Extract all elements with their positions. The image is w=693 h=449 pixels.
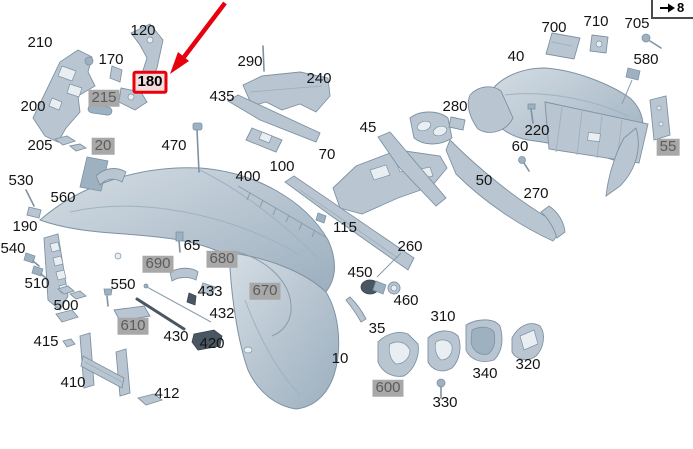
part-label-412[interactable]: 412 xyxy=(154,386,179,403)
part-415-drawing xyxy=(63,339,75,347)
part-280-drawing xyxy=(449,117,465,130)
part-35-drawing xyxy=(346,297,366,322)
part-label-310[interactable]: 310 xyxy=(430,309,455,326)
part-label-60[interactable]: 60 xyxy=(512,139,529,156)
part-label-290[interactable]: 290 xyxy=(237,54,262,71)
part-label-270[interactable]: 270 xyxy=(523,186,548,203)
part-label-320[interactable]: 320 xyxy=(515,357,540,374)
arrow-right-icon xyxy=(660,3,675,13)
part-label-550[interactable]: 550 xyxy=(110,277,135,294)
part-label-200[interactable]: 200 xyxy=(20,99,45,116)
part-label-20[interactable]: 20 xyxy=(92,138,115,155)
part-540-drawing xyxy=(24,253,39,266)
part-label-400[interactable]: 400 xyxy=(235,169,260,186)
part-600-drawing xyxy=(378,332,418,376)
part-label-500[interactable]: 500 xyxy=(53,298,78,315)
part-label-560[interactable]: 560 xyxy=(50,190,75,207)
part-200-drawing xyxy=(33,50,95,142)
part-label-120[interactable]: 120 xyxy=(130,23,155,40)
part-label-180[interactable]: 180 xyxy=(132,71,167,94)
part-label-705[interactable]: 705 xyxy=(624,16,649,33)
nav-page-link[interactable]: 8 xyxy=(651,0,693,19)
part-690-drawing xyxy=(170,268,198,281)
nav-page-number: 8 xyxy=(677,0,684,15)
part-label-435[interactable]: 435 xyxy=(209,89,234,106)
part-60-drawing xyxy=(519,157,530,172)
part-label-600[interactable]: 600 xyxy=(372,380,403,397)
part-700-drawing xyxy=(546,33,580,59)
parts-diagram: 2101201701802002152052047043529024045280… xyxy=(0,0,693,449)
part-label-215[interactable]: 215 xyxy=(88,90,119,107)
part-label-210[interactable]: 210 xyxy=(27,35,52,52)
part-label-680[interactable]: 680 xyxy=(206,251,237,268)
part-label-420[interactable]: 420 xyxy=(199,336,224,353)
part-55-panel-drawing xyxy=(650,96,670,140)
part-label-340[interactable]: 340 xyxy=(472,366,497,383)
part-label-40[interactable]: 40 xyxy=(508,49,525,66)
part-label-35[interactable]: 35 xyxy=(369,321,386,338)
part-705-drawing xyxy=(642,34,661,48)
part-label-70[interactable]: 70 xyxy=(319,147,336,164)
part-label-330[interactable]: 330 xyxy=(432,395,457,412)
part-label-10[interactable]: 10 xyxy=(332,351,349,368)
part-label-240[interactable]: 240 xyxy=(306,71,331,88)
part-label-540[interactable]: 540 xyxy=(0,241,25,258)
part-433-drawing xyxy=(187,293,196,305)
part-label-432[interactable]: 432 xyxy=(209,306,234,323)
part-label-580[interactable]: 580 xyxy=(633,52,658,69)
part-label-460[interactable]: 460 xyxy=(393,293,418,310)
part-label-170[interactable]: 170 xyxy=(98,52,123,69)
part-label-55[interactable]: 55 xyxy=(657,139,680,156)
part-label-433[interactable]: 433 xyxy=(197,284,222,301)
part-label-415[interactable]: 415 xyxy=(33,334,58,351)
part-170-drawing xyxy=(110,66,122,82)
part-label-410[interactable]: 410 xyxy=(60,375,85,392)
part-label-510[interactable]: 510 xyxy=(24,276,49,293)
part-310-drawing xyxy=(428,331,460,371)
part-label-100[interactable]: 100 xyxy=(269,159,294,176)
part-450-drawing xyxy=(361,280,386,294)
part-340-drawing xyxy=(466,320,502,362)
part-label-430[interactable]: 430 xyxy=(163,329,188,346)
part-label-205[interactable]: 205 xyxy=(27,138,52,155)
part-470-drawing xyxy=(193,123,202,172)
part-710-drawing xyxy=(590,35,608,53)
part-320-drawing xyxy=(512,324,543,360)
part-205-drawing xyxy=(55,136,86,151)
part-label-470[interactable]: 470 xyxy=(161,138,186,155)
part-label-530[interactable]: 530 xyxy=(8,173,33,190)
part-65-drawing xyxy=(176,232,183,252)
part-label-450[interactable]: 450 xyxy=(347,265,372,282)
part-label-610[interactable]: 610 xyxy=(117,318,148,335)
part-410-drawing xyxy=(80,333,130,396)
part-label-65[interactable]: 65 xyxy=(184,238,201,255)
part-label-115[interactable]: 115 xyxy=(333,220,357,237)
part-label-260[interactable]: 260 xyxy=(397,239,422,256)
part-290-drawing xyxy=(263,46,264,71)
highlight-arrow xyxy=(170,3,225,74)
part-530-drawing xyxy=(26,190,41,218)
part-label-690[interactable]: 690 xyxy=(142,256,173,273)
part-label-280[interactable]: 280 xyxy=(442,99,467,116)
part-label-700[interactable]: 700 xyxy=(541,20,566,37)
part-label-50[interactable]: 50 xyxy=(476,173,493,190)
part-label-710[interactable]: 710 xyxy=(583,14,608,31)
part-115-drawing xyxy=(316,213,326,223)
part-label-670[interactable]: 670 xyxy=(249,283,280,300)
part-label-190[interactable]: 190 xyxy=(12,219,37,236)
part-label-45[interactable]: 45 xyxy=(360,120,377,137)
